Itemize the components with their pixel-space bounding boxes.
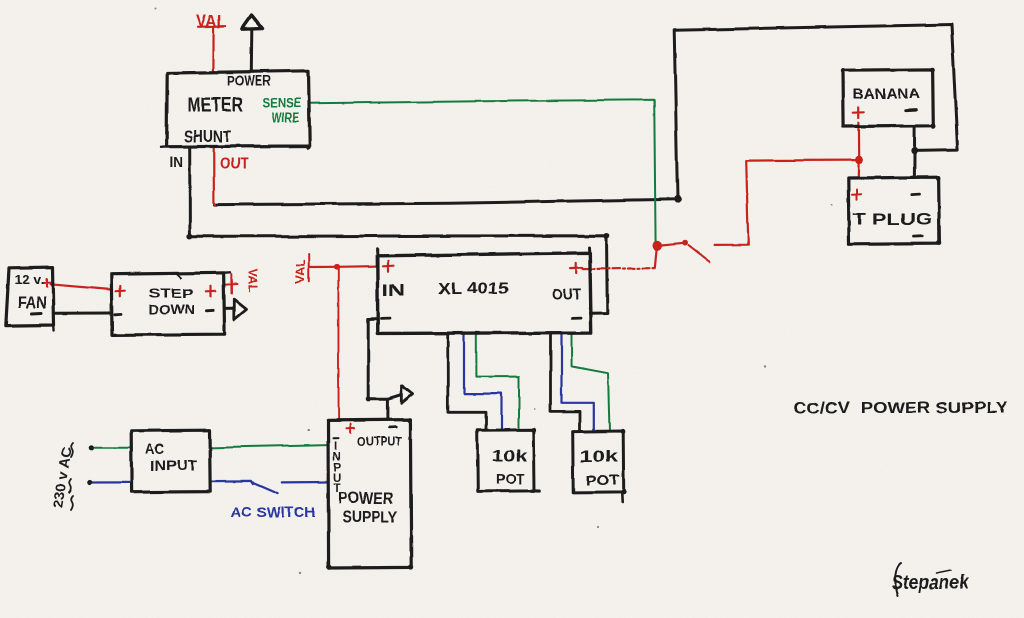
- svg-text:AC SWITCH: AC SWITCH: [231, 504, 316, 521]
- svg-text:OUT: OUT: [220, 156, 250, 173]
- svg-text:12 v.: 12 v.: [15, 272, 45, 287]
- svg-text:SUPPLY: SUPPLY: [343, 509, 398, 527]
- svg-text:T PLUG: T PLUG: [853, 210, 933, 229]
- svg-text:SHUNT: SHUNT: [184, 128, 232, 146]
- svg-text:VAL: VAL: [197, 12, 227, 31]
- svg-text:XL 4015: XL 4015: [438, 279, 509, 298]
- svg-text:VAL: VAL: [246, 269, 261, 293]
- svg-text:SENSE: SENSE: [262, 95, 301, 111]
- svg-text:METER: METER: [188, 95, 244, 117]
- svg-text:Stepanek: Stepanek: [891, 572, 970, 594]
- svg-text:CC/CV POWER SUPPLY: CC/CV POWER SUPPLY: [793, 400, 1008, 417]
- svg-text:POT: POT: [586, 472, 620, 489]
- svg-text:STEP: STEP: [149, 286, 194, 301]
- svg-text:IN: IN: [170, 154, 184, 171]
- svg-text:IN: IN: [382, 281, 405, 300]
- svg-text:OUT: OUT: [552, 287, 582, 304]
- svg-text:FAN: FAN: [18, 294, 47, 313]
- svg-text:VAL: VAL: [293, 259, 308, 283]
- svg-text:POWER: POWER: [227, 73, 271, 90]
- svg-text:POT: POT: [497, 471, 525, 488]
- svg-text:INPUT: INPUT: [150, 458, 198, 475]
- svg-text:AC: AC: [145, 442, 164, 458]
- svg-text:POWER: POWER: [338, 490, 393, 508]
- svg-text:WIRE: WIRE: [272, 110, 300, 125]
- svg-text:OUTPUT: OUTPUT: [357, 434, 402, 449]
- svg-text:10k: 10k: [492, 447, 528, 466]
- svg-text:DOWN: DOWN: [149, 301, 196, 317]
- svg-text:BANANA: BANANA: [853, 86, 920, 103]
- svg-text:10k: 10k: [579, 447, 619, 466]
- svg-text:T: T: [334, 483, 341, 495]
